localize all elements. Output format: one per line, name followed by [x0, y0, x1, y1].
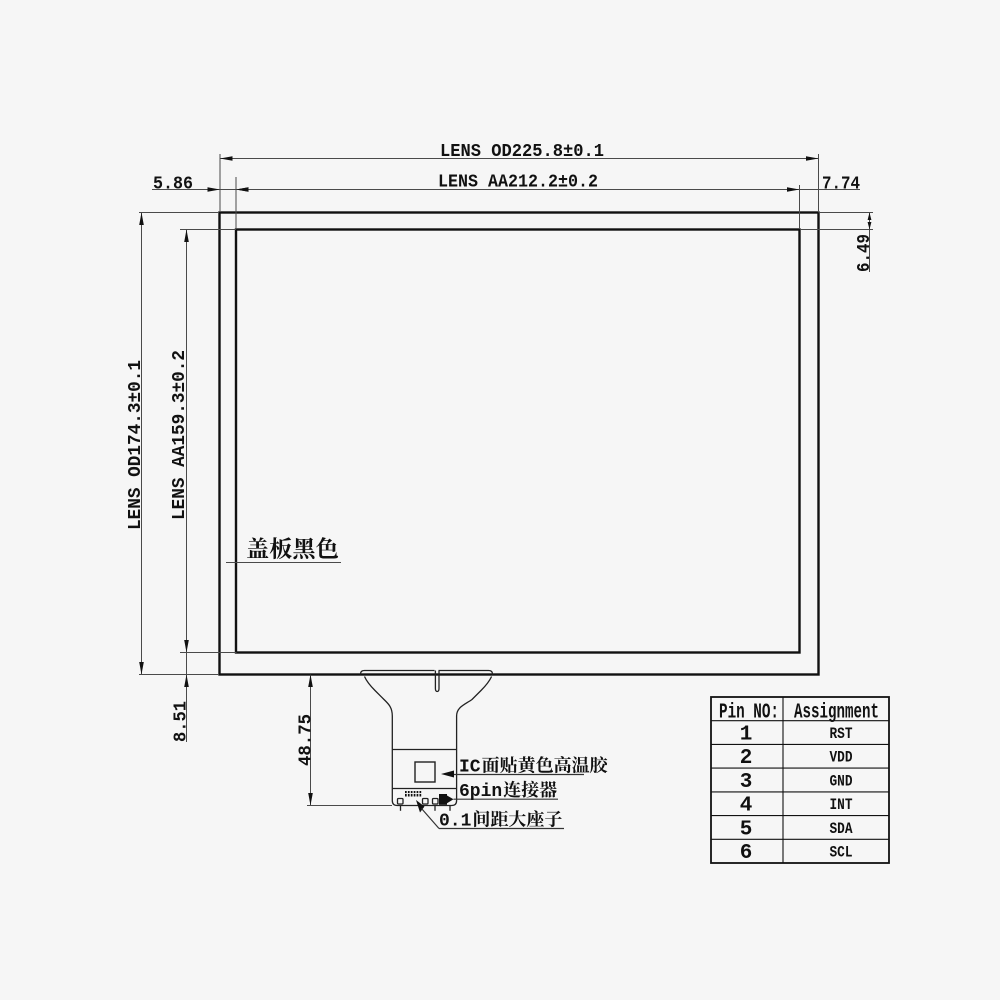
svg-text:INT: INT	[830, 796, 853, 814]
svg-text:SCL: SCL	[830, 844, 853, 862]
svg-text:3: 3	[740, 771, 753, 794]
svg-text:2: 2	[740, 747, 753, 770]
svg-text:5: 5	[740, 818, 753, 841]
svg-text:Pin NO:: Pin NO:	[719, 702, 779, 725]
svg-text:48.75: 48.75	[296, 714, 317, 766]
svg-text:0.1: 0.1	[439, 812, 472, 832]
svg-text:GND: GND	[830, 772, 853, 790]
svg-text:6.49: 6.49	[854, 234, 875, 272]
svg-text:LENS AA212.2±0.2: LENS AA212.2±0.2	[438, 171, 598, 192]
svg-text:4: 4	[740, 795, 753, 818]
svg-text:IC: IC	[459, 758, 481, 778]
svg-text:LENS OD225.8±0.1: LENS OD225.8±0.1	[440, 141, 604, 162]
svg-text:7.74: 7.74	[822, 173, 860, 194]
svg-text:RST: RST	[830, 725, 853, 743]
svg-text:6: 6	[740, 842, 753, 865]
svg-text:SDA: SDA	[830, 820, 853, 838]
svg-text:1: 1	[740, 723, 753, 746]
svg-text:LENS OD174.3±0.1: LENS OD174.3±0.1	[125, 360, 146, 530]
svg-text:6pin: 6pin	[459, 782, 502, 802]
svg-text:8.51: 8.51	[171, 701, 192, 742]
svg-text:5.86: 5.86	[153, 173, 193, 194]
svg-text:VDD: VDD	[830, 749, 853, 767]
svg-text:LENS AA159.3±0.2: LENS AA159.3±0.2	[169, 350, 190, 520]
svg-text:Assignment: Assignment	[794, 702, 879, 725]
